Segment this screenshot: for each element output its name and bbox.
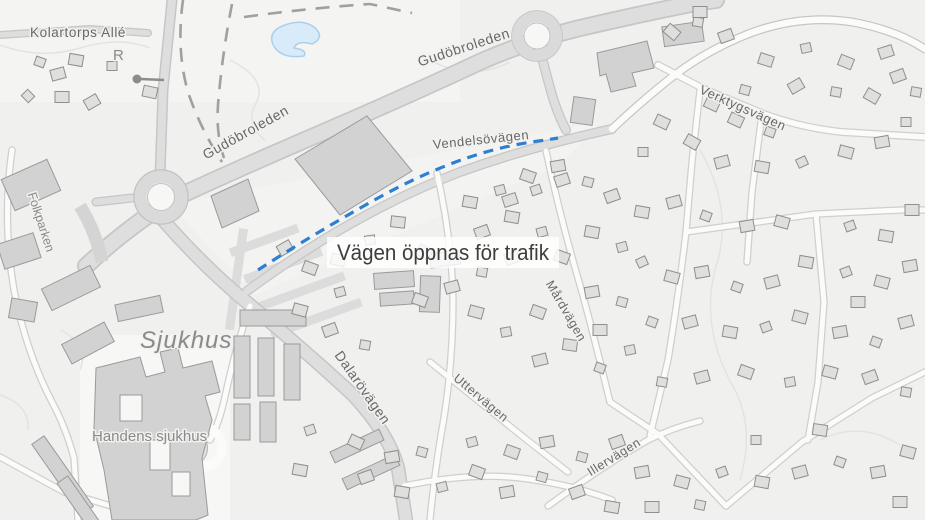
building-house — [466, 436, 478, 447]
map-canvas[interactable]: Kolartorps Allé R Gudöbroleden Gudöbrole… — [0, 0, 925, 520]
building-house — [582, 176, 594, 187]
building-house — [292, 463, 308, 476]
building-house — [584, 225, 600, 238]
building-house — [800, 43, 812, 54]
building-house — [874, 135, 890, 148]
building-house — [739, 84, 751, 95]
building-house — [499, 485, 515, 498]
building-house — [693, 7, 707, 18]
building-house — [694, 500, 706, 511]
building-house — [722, 325, 738, 338]
building-house — [784, 377, 795, 388]
building-house — [55, 92, 69, 103]
building-house — [900, 387, 911, 398]
building-house — [754, 160, 770, 173]
building-house — [893, 497, 907, 508]
building-house — [870, 465, 886, 478]
building-house — [142, 85, 158, 99]
building-house — [536, 471, 548, 482]
building-house — [616, 241, 628, 252]
building-house — [878, 229, 894, 242]
building-house — [359, 340, 370, 351]
building-house — [694, 265, 710, 278]
rune-symbol: R — [113, 47, 124, 64]
building-house — [476, 267, 487, 278]
building-house — [624, 345, 636, 356]
building-house — [584, 285, 600, 298]
building-house — [394, 485, 410, 498]
building-house — [751, 436, 761, 445]
building-house — [500, 327, 511, 338]
building-house — [634, 465, 650, 478]
building-house — [798, 255, 814, 268]
building-house — [634, 205, 650, 218]
building-house — [390, 216, 405, 228]
building-house — [910, 87, 921, 98]
label-sjukhus: Sjukhus — [140, 327, 232, 354]
building-house — [638, 148, 648, 157]
building-house — [604, 500, 620, 513]
building-house — [645, 502, 659, 513]
building-house — [905, 205, 919, 216]
building-house — [902, 259, 918, 272]
building-house — [656, 377, 667, 388]
building-house — [754, 475, 770, 488]
label-handens-sjukhus: Handens sjukhus — [92, 428, 207, 445]
building-house — [68, 53, 84, 66]
building-house — [832, 325, 848, 338]
building-house — [384, 450, 400, 463]
building-house — [739, 219, 755, 232]
building-house — [851, 297, 865, 308]
annotation-text: Vägen öppnas för trafik — [337, 240, 550, 265]
annotation-label: Vägen öppnas för trafik — [327, 237, 559, 268]
map-svg: Kolartorps Allé R Gudöbroleden Gudöbrole… — [0, 0, 925, 520]
building-house — [436, 481, 448, 492]
building-house — [901, 118, 911, 127]
building-house — [334, 286, 346, 297]
building-house — [536, 226, 548, 237]
building-house — [616, 296, 628, 307]
building-house — [550, 159, 566, 172]
building-house — [494, 184, 506, 195]
roundabout-west — [134, 170, 188, 224]
building-house — [812, 424, 827, 437]
building-house — [593, 325, 607, 336]
building-house — [504, 210, 520, 223]
building-house — [416, 446, 428, 457]
building-house — [830, 87, 841, 98]
building-house — [576, 451, 588, 462]
roundabout-north — [512, 11, 562, 61]
building-house — [692, 17, 703, 28]
building-house — [462, 195, 478, 208]
label-kolartorps-alle: Kolartorps Allé — [30, 25, 126, 40]
building-house — [539, 435, 555, 448]
